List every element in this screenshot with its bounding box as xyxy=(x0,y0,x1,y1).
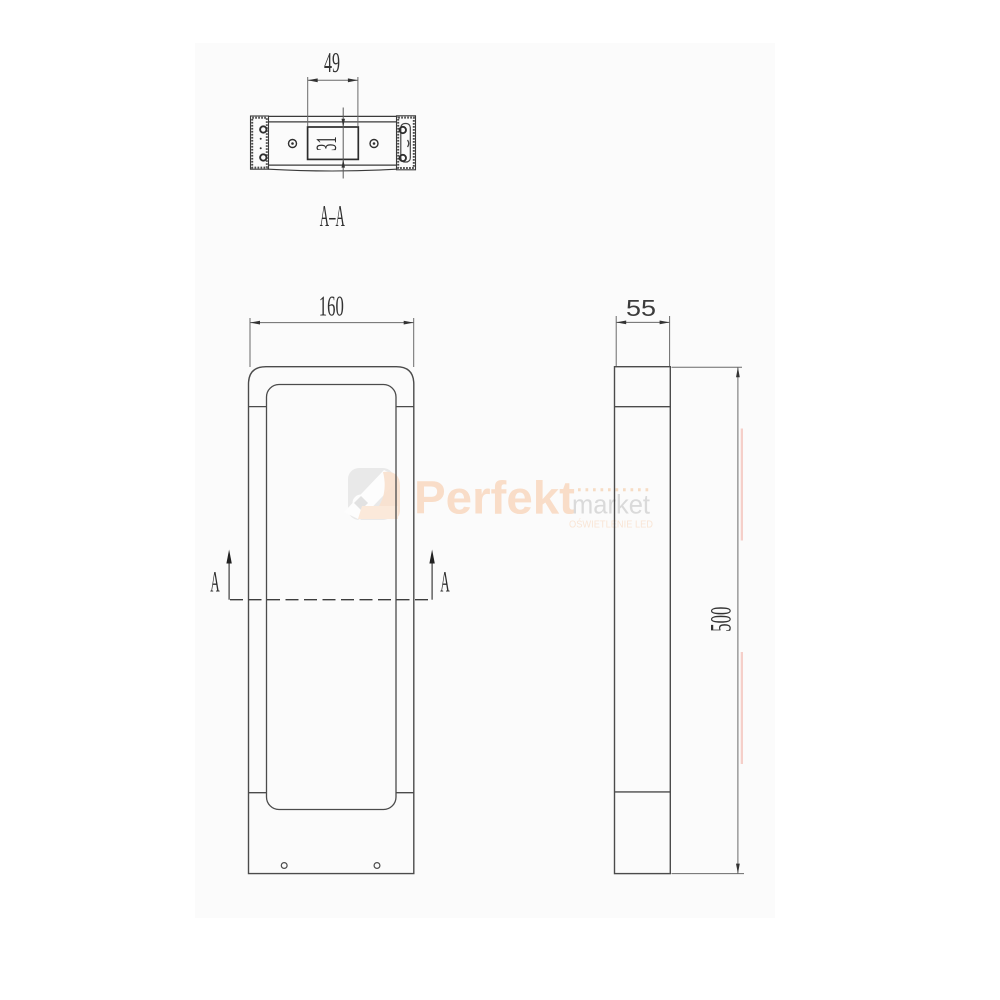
svg-text:A: A xyxy=(440,566,450,599)
svg-text:Perfekt: Perfekt xyxy=(414,472,575,524)
svg-text:31: 31 xyxy=(310,136,343,151)
svg-text:500: 500 xyxy=(705,607,738,632)
svg-text:market: market xyxy=(572,490,651,520)
svg-text:55: 55 xyxy=(626,295,656,321)
svg-text:A–A: A–A xyxy=(320,198,345,233)
svg-text:49: 49 xyxy=(324,47,340,79)
svg-text:A: A xyxy=(210,566,220,599)
svg-text:160: 160 xyxy=(319,291,344,323)
svg-text:OŚWIETLENIE LED: OŚWIETLENIE LED xyxy=(569,518,653,531)
